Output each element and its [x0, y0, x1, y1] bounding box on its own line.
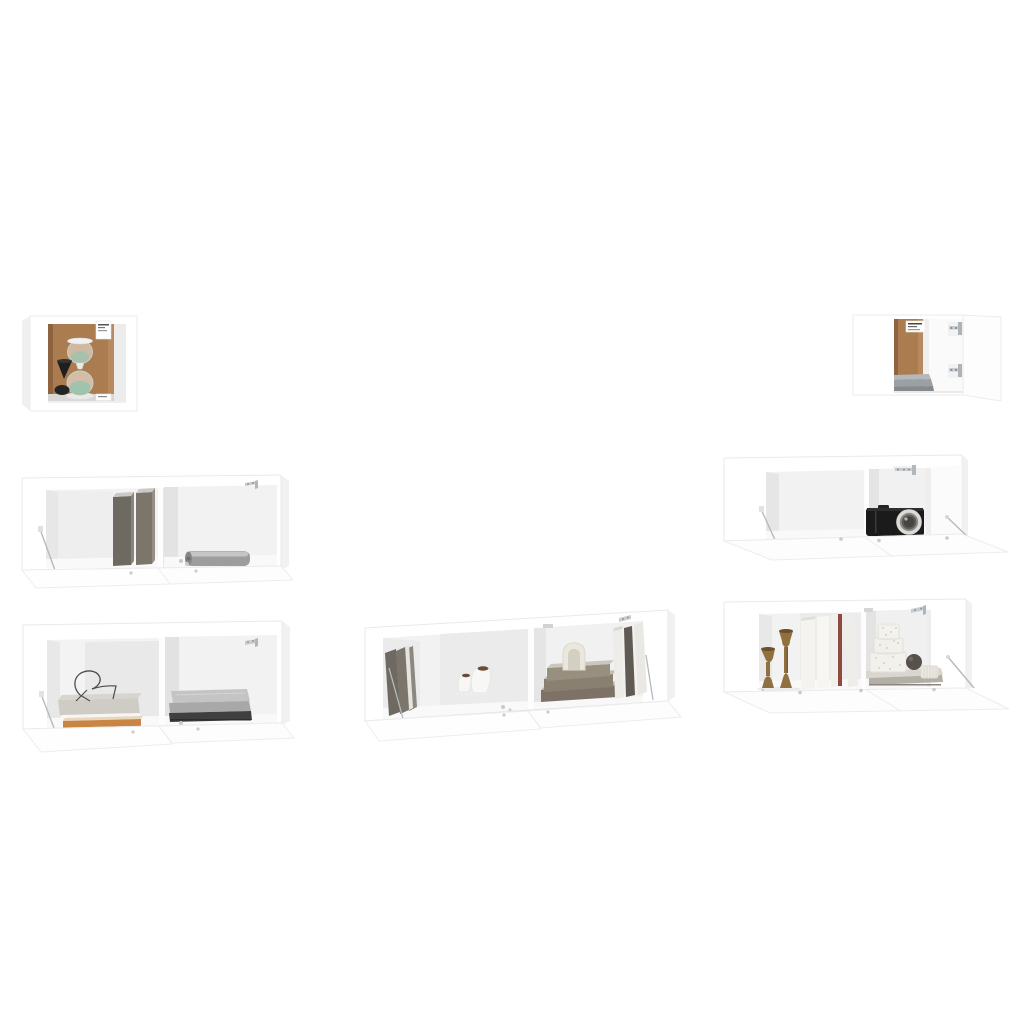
- tv-cabinet-mid-right: [724, 455, 1008, 560]
- door-hardware: [194, 569, 197, 572]
- center-divider: [861, 611, 866, 689]
- label-line: [98, 396, 107, 397]
- bracket-tab: [255, 638, 258, 647]
- bracket-screw: [951, 369, 953, 371]
- bracket-screw: [955, 327, 957, 329]
- vase-soil: [462, 674, 470, 678]
- hinge-hardware: [543, 624, 553, 628]
- tier-top: [878, 622, 899, 626]
- tv-cabinet-mid-left: [22, 475, 293, 588]
- candle-holder-short-stem: [766, 662, 770, 676]
- book: [113, 496, 131, 566]
- bracket-tab: [255, 480, 258, 489]
- stem-shade: [787, 647, 789, 673]
- label-line: [908, 323, 922, 325]
- bracket-screw: [627, 617, 629, 619]
- drop-door-left: [22, 568, 170, 588]
- book-side: [152, 488, 155, 564]
- vase-tier-mid: [874, 638, 903, 653]
- label-line: [908, 326, 917, 327]
- label-line: [98, 327, 105, 328]
- vase-tier-top: [878, 624, 899, 639]
- bracket-screw: [951, 327, 953, 329]
- open-door-panel: [963, 315, 1001, 401]
- book: [58, 698, 140, 716]
- cabinet-small-wide: [853, 315, 1001, 401]
- label-line: [98, 330, 107, 331]
- product-photo-canvas: [0, 0, 1024, 1024]
- center-divider: [528, 629, 534, 713]
- center-divider: [159, 638, 165, 727]
- door-hardware: [131, 730, 134, 733]
- cabinet-small-cube: [22, 316, 137, 411]
- hinge-hardware: [179, 721, 183, 725]
- hinge-hardware: [864, 608, 873, 612]
- roll-spiral: [187, 557, 191, 561]
- arch-inner: [568, 649, 580, 670]
- stacked-books: [894, 374, 934, 392]
- bracket-screw: [247, 641, 249, 643]
- product-label: [96, 321, 111, 339]
- bracket-screw: [955, 369, 957, 371]
- cabinet-side-panel: [281, 475, 289, 570]
- tv-cabinet-bottom-right: [724, 599, 1009, 713]
- cone-top: [57, 359, 72, 363]
- camera: [866, 505, 925, 540]
- bracket-screw: [897, 469, 899, 471]
- cabinet-side-panel: [962, 455, 968, 536]
- blanket: [171, 689, 250, 703]
- door-hardware: [859, 689, 863, 693]
- door-hardware: [877, 539, 881, 543]
- bracket-screw: [252, 482, 254, 484]
- door-hardware: [932, 688, 936, 692]
- book: [801, 619, 815, 690]
- cabinet-side-panel: [966, 599, 972, 689]
- hinge-hardware: [185, 562, 189, 566]
- furniture-set-illustration: [0, 0, 1024, 1024]
- product-label: [906, 321, 925, 332]
- bracket-screw: [914, 609, 916, 611]
- bracket-tab: [958, 364, 962, 377]
- wall-bracket: [948, 322, 964, 336]
- vase-tier-bottom: [870, 652, 906, 672]
- stay-mount: [946, 655, 950, 659]
- book-side: [131, 492, 134, 565]
- arch-ornament: [563, 643, 585, 670]
- cabinet-side-panel: [22, 316, 30, 411]
- bracket-tab: [958, 322, 962, 335]
- hinge-hardware: [179, 559, 183, 563]
- lens-highlight: [904, 517, 907, 520]
- door-hardware: [502, 713, 505, 716]
- stay-mount: [39, 691, 44, 697]
- tv-cabinet-center: [365, 610, 681, 741]
- black-pebble-ornament: [55, 385, 70, 395]
- book: [894, 374, 931, 380]
- bracket-tab: [912, 465, 916, 475]
- book: [894, 379, 933, 387]
- door-hardware: [196, 727, 199, 730]
- shelf-front-edge: [894, 391, 963, 393]
- bracket-tab: [923, 605, 926, 615]
- hourglass-sand-bottom: [70, 381, 91, 395]
- blanket-shadow-line: [170, 719, 251, 721]
- door-hardware: [798, 691, 802, 695]
- rolled-blanket: [185, 551, 250, 566]
- book: [817, 616, 829, 688]
- blanket: [169, 701, 251, 713]
- bracket-screw: [908, 469, 910, 471]
- door-hardware: [546, 710, 549, 713]
- sphere-highlight: [909, 657, 913, 661]
- door-hardware: [945, 536, 949, 540]
- drop-door-right: [159, 723, 294, 743]
- bracket-screw: [903, 469, 905, 471]
- tv-cabinet-bottom-left: [23, 621, 294, 752]
- folded-blankets: [169, 689, 252, 722]
- shelf-front-edge: [48, 401, 126, 403]
- candle-holder-top: [761, 647, 775, 651]
- vase-large: [471, 667, 490, 693]
- vase-soil: [478, 666, 489, 670]
- interior-left-wall: [766, 472, 779, 540]
- cork-shadow-edge: [48, 324, 53, 403]
- wall-bracket: [948, 364, 964, 378]
- drop-door-left: [23, 726, 172, 752]
- label-line: [908, 329, 920, 330]
- candle-holder-top: [779, 629, 793, 633]
- interior-right-wall: [114, 324, 126, 403]
- camera-grip-line: [875, 511, 877, 533]
- label-line: [98, 324, 109, 326]
- bracket-screw: [247, 483, 249, 485]
- sphere-ornament: [906, 654, 922, 670]
- cabinet-side-panel: [668, 610, 675, 701]
- interior-back-shade: [58, 491, 113, 567]
- stay-mount: [759, 506, 764, 512]
- book-spine: [838, 614, 842, 686]
- door-hardware: [839, 537, 843, 541]
- interior-back-shade: [164, 487, 178, 567]
- books-standing: [113, 488, 155, 566]
- bracket-screw: [252, 640, 254, 642]
- door-hardware: [129, 571, 132, 574]
- book: [136, 492, 152, 565]
- ribbed-box: [921, 666, 938, 678]
- product-label-small: [96, 394, 111, 401]
- cabinet-side-panel: [282, 621, 290, 725]
- base-shadow-line: [869, 684, 941, 686]
- bracket-screw: [920, 608, 922, 610]
- stay-mount: [38, 526, 43, 532]
- drop-door: [724, 688, 1009, 713]
- stay-mount: [945, 515, 949, 519]
- bracket-screw: [622, 618, 624, 620]
- wall-bracket: [893, 465, 916, 475]
- hinge-hardware: [501, 705, 505, 709]
- hourglass-sand-top: [71, 352, 89, 363]
- label-card: [96, 394, 111, 401]
- roll-highlight: [189, 552, 248, 557]
- hourglass-cap: [68, 338, 93, 344]
- drop-door-right: [158, 566, 293, 584]
- interior-wall-shade: [926, 468, 931, 536]
- interior-left-wall: [46, 490, 58, 568]
